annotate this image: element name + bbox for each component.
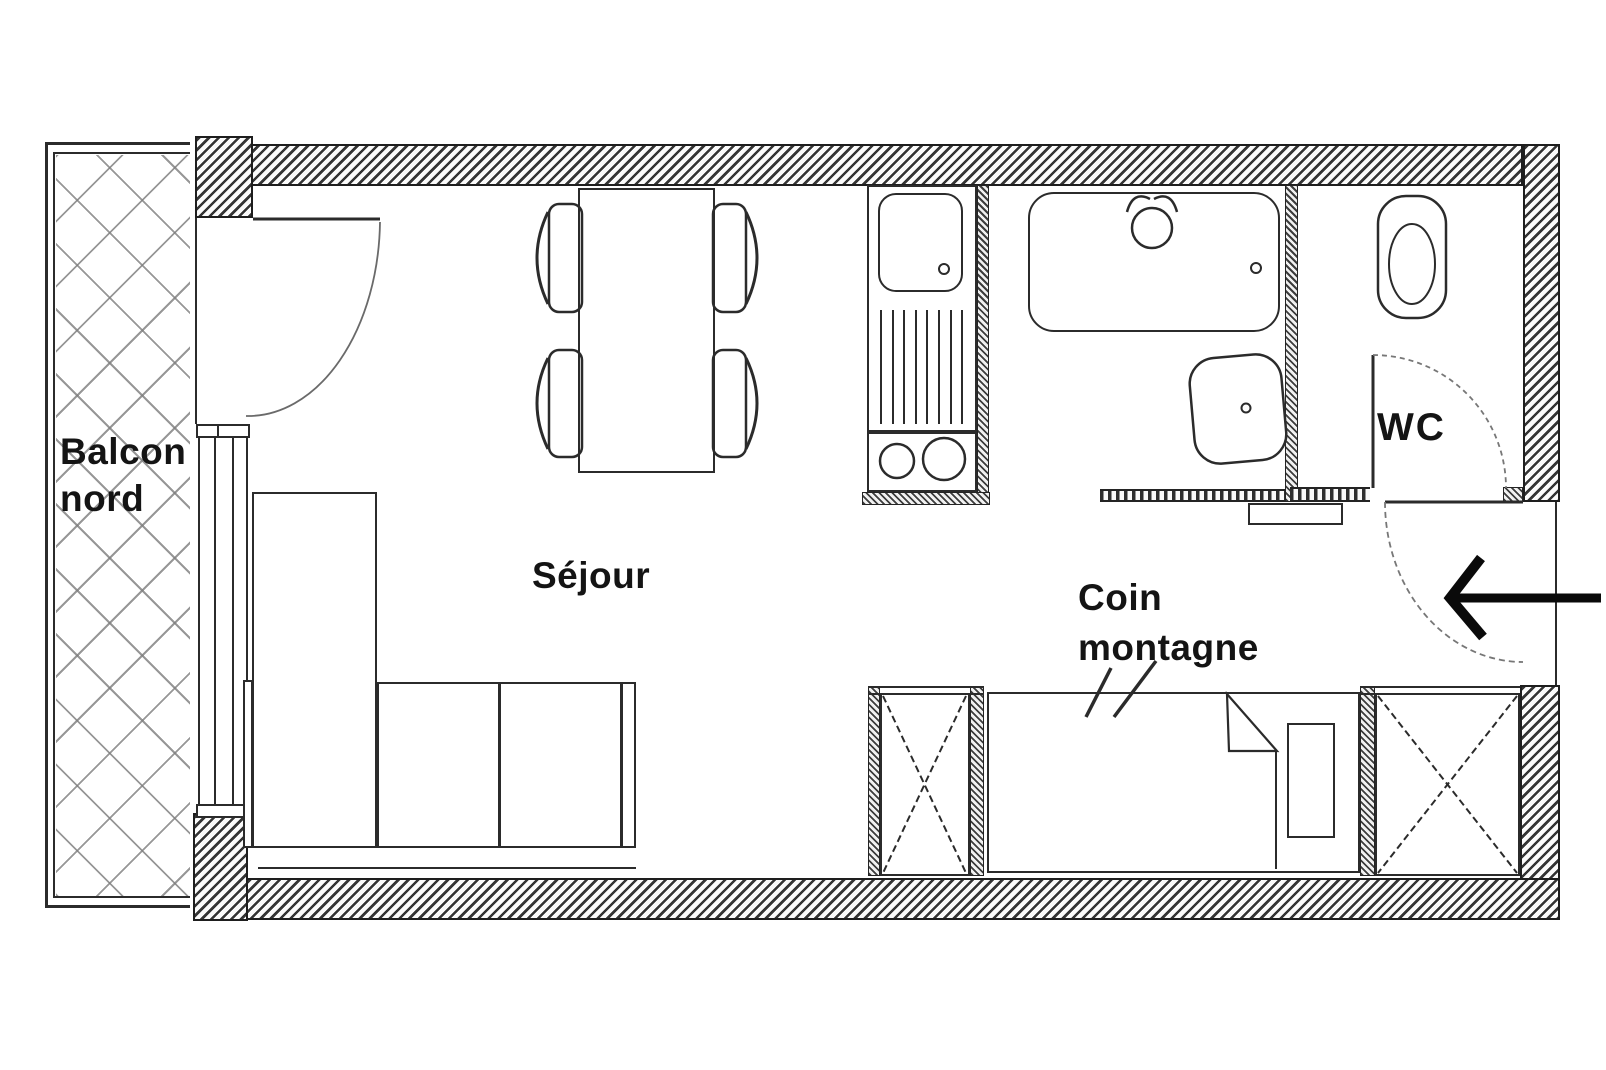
sleeping-nook-label: Coin montagne bbox=[1078, 573, 1259, 673]
entry-opening-outer-face bbox=[1555, 502, 1557, 685]
sofa-chaise bbox=[252, 492, 377, 848]
bath-wc-partition bbox=[1285, 185, 1298, 502]
right-wall-lower bbox=[1520, 685, 1560, 881]
top-wall bbox=[195, 144, 1523, 186]
sofa-seat-2 bbox=[499, 682, 622, 848]
right-wall-upper bbox=[1523, 144, 1560, 502]
kitchen-base-partition bbox=[862, 492, 990, 505]
closet-left bbox=[880, 693, 970, 876]
bathroom-threshold bbox=[1248, 503, 1343, 525]
window-frame-line-2 bbox=[214, 438, 216, 804]
washbasin bbox=[1188, 352, 1289, 466]
balcony-label-line2: nord bbox=[60, 478, 144, 519]
sofa-seat-1 bbox=[377, 682, 500, 848]
window-sill-top-divider bbox=[217, 424, 219, 438]
kitchen-bath-partition bbox=[977, 185, 989, 505]
balcony-label: Balcon nord bbox=[60, 428, 186, 522]
chair-top-right bbox=[713, 204, 757, 312]
bottom-wall bbox=[246, 878, 1560, 920]
closet-right bbox=[1375, 693, 1520, 876]
window-sill-top bbox=[196, 424, 250, 438]
toilet-bowl bbox=[1389, 224, 1435, 304]
toilet-body bbox=[1378, 196, 1446, 318]
sleeping-nook-label-line1: Coin bbox=[1078, 577, 1162, 618]
wc-south-partition bbox=[1290, 487, 1370, 502]
entrance-arrow-icon bbox=[1450, 558, 1601, 637]
top-wall-left-pier bbox=[195, 136, 253, 218]
balcony-door-reveal bbox=[195, 218, 197, 424]
sleeping-nook-label-line2: montagne bbox=[1078, 627, 1259, 668]
kitchen-counter-divider bbox=[867, 430, 977, 434]
sofa-armrest-right bbox=[621, 682, 636, 848]
window-frame-line-3 bbox=[232, 438, 234, 804]
sofa-plinth-line bbox=[258, 867, 636, 869]
entry-door-swing-arc bbox=[1385, 502, 1523, 662]
window-sill-bottom bbox=[196, 804, 250, 818]
living-room-label: Séjour bbox=[532, 552, 650, 599]
balcony-label-line1: Balcon bbox=[60, 431, 186, 472]
washbasin-drain bbox=[1242, 404, 1251, 413]
balcony-floor-lattice bbox=[56, 155, 190, 896]
bottom-left-pier bbox=[193, 813, 248, 921]
bathroom-south-partition bbox=[1100, 489, 1285, 502]
closet-left-west-jamb bbox=[868, 686, 880, 876]
wc-label: WC bbox=[1377, 404, 1446, 451]
bed-pillow-shelf bbox=[1287, 723, 1335, 838]
chair-bottom-right bbox=[713, 350, 757, 457]
floor-plan: Balcon nord Séjour Coin montagne WC bbox=[0, 0, 1606, 1070]
entry-door-jamb bbox=[1503, 487, 1523, 502]
kitchen-sink bbox=[878, 193, 963, 292]
balcony-door-swing-arc bbox=[246, 222, 380, 416]
closet-right-west-jamb bbox=[1360, 686, 1375, 876]
closet-left-east-jamb bbox=[970, 686, 984, 876]
bathtub bbox=[1028, 192, 1280, 332]
dining-table bbox=[578, 188, 715, 473]
chair-bottom-left bbox=[537, 350, 582, 457]
sofa-armrest-left bbox=[243, 680, 253, 848]
chair-top-left bbox=[537, 204, 582, 312]
window-frame-line-1 bbox=[198, 438, 200, 804]
